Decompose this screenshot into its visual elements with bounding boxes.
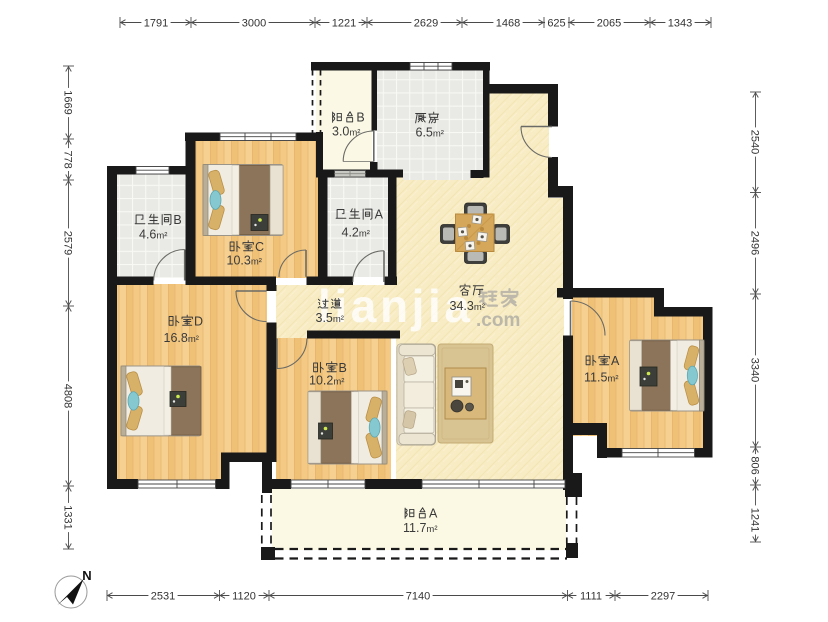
svg-text:3.0m²: 3.0m² [332,125,360,139]
svg-text:1791: 1791 [144,18,168,30]
svg-text:3.5m²: 3.5m² [316,311,344,325]
svg-text:C: C [255,240,264,254]
svg-text:2540: 2540 [749,130,761,154]
svg-text:806: 806 [749,456,761,474]
svg-text:B: B [173,213,181,227]
svg-text:1331: 1331 [62,505,74,529]
svg-text:10.3m²: 10.3m² [227,254,262,268]
svg-text:1221: 1221 [332,18,356,30]
svg-text:.com: .com [476,310,520,331]
svg-text:2065: 2065 [597,18,621,30]
svg-text:7140: 7140 [406,591,430,603]
svg-text:778: 778 [62,150,74,168]
svg-text:625: 625 [547,18,565,30]
svg-text:2297: 2297 [651,591,675,603]
svg-text:2629: 2629 [414,18,438,30]
svg-text:34.3m²: 34.3m² [450,299,485,313]
svg-text:A: A [611,354,620,368]
svg-text:10.2m²: 10.2m² [309,374,344,388]
svg-text:3000: 3000 [242,18,266,30]
svg-text:11.7m²: 11.7m² [403,521,437,535]
svg-text:1241: 1241 [749,508,761,532]
svg-text:B: B [339,361,347,375]
svg-text:1111: 1111 [580,591,602,603]
svg-text:B: B [356,111,364,125]
svg-text:3340: 3340 [749,358,761,382]
svg-text:2579: 2579 [62,231,74,255]
svg-text:2496: 2496 [749,231,761,255]
svg-text:4.2m²: 4.2m² [342,226,370,240]
svg-text:N: N [82,568,91,583]
svg-text:16.8m²: 16.8m² [164,331,199,345]
svg-text:1669: 1669 [62,90,74,114]
svg-text:2531: 2531 [151,591,175,603]
svg-text:1343: 1343 [668,18,692,30]
svg-text:1468: 1468 [496,18,520,30]
svg-text:D: D [194,315,203,329]
svg-text:4808: 4808 [62,384,74,408]
svg-text:6.5m²: 6.5m² [416,126,444,140]
svg-text:1120: 1120 [232,591,256,603]
svg-text:A: A [375,208,384,222]
svg-text:11.5m²: 11.5m² [584,371,618,385]
svg-text:A: A [429,507,438,521]
svg-text:4.6m²: 4.6m² [139,228,167,242]
